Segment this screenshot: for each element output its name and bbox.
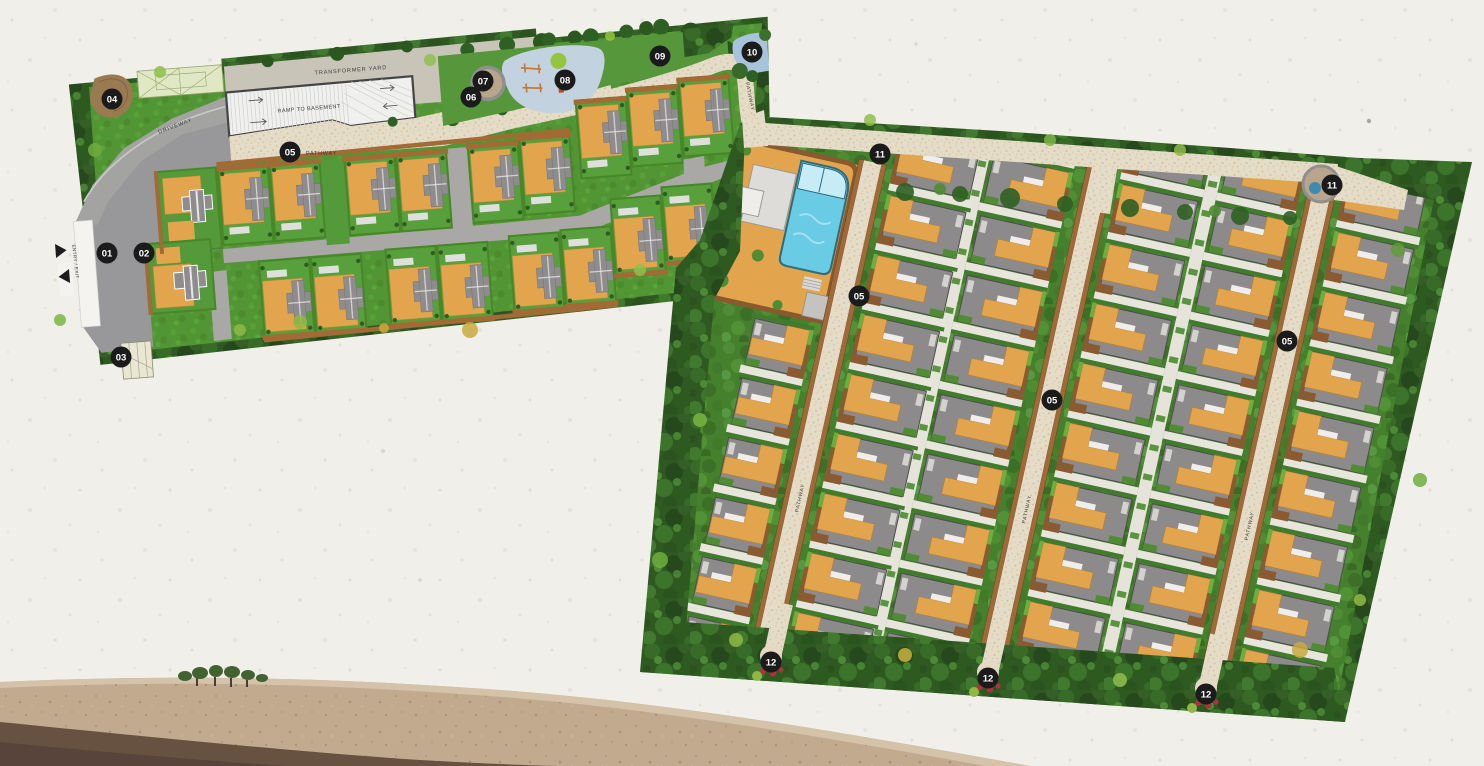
svg-text:04: 04	[107, 94, 118, 105]
svg-text:05: 05	[1282, 336, 1293, 347]
svg-text:PATHWAY: PATHWAY	[306, 151, 337, 157]
svg-text:02: 02	[139, 248, 150, 259]
svg-text:01: 01	[102, 248, 113, 259]
svg-text:12: 12	[766, 657, 777, 668]
svg-text:12: 12	[983, 673, 994, 684]
svg-text:05: 05	[854, 291, 865, 302]
svg-text:08: 08	[560, 75, 571, 86]
svg-text:12: 12	[1201, 689, 1212, 700]
svg-text:05: 05	[1047, 395, 1058, 406]
svg-text:11: 11	[1327, 180, 1338, 191]
svg-text:11: 11	[875, 149, 886, 160]
svg-text:05: 05	[285, 147, 296, 158]
svg-text:06: 06	[466, 92, 477, 103]
svg-text:09: 09	[655, 51, 666, 62]
svg-text:03: 03	[116, 352, 127, 363]
svg-text:07: 07	[478, 76, 489, 87]
svg-text:10: 10	[747, 47, 758, 58]
